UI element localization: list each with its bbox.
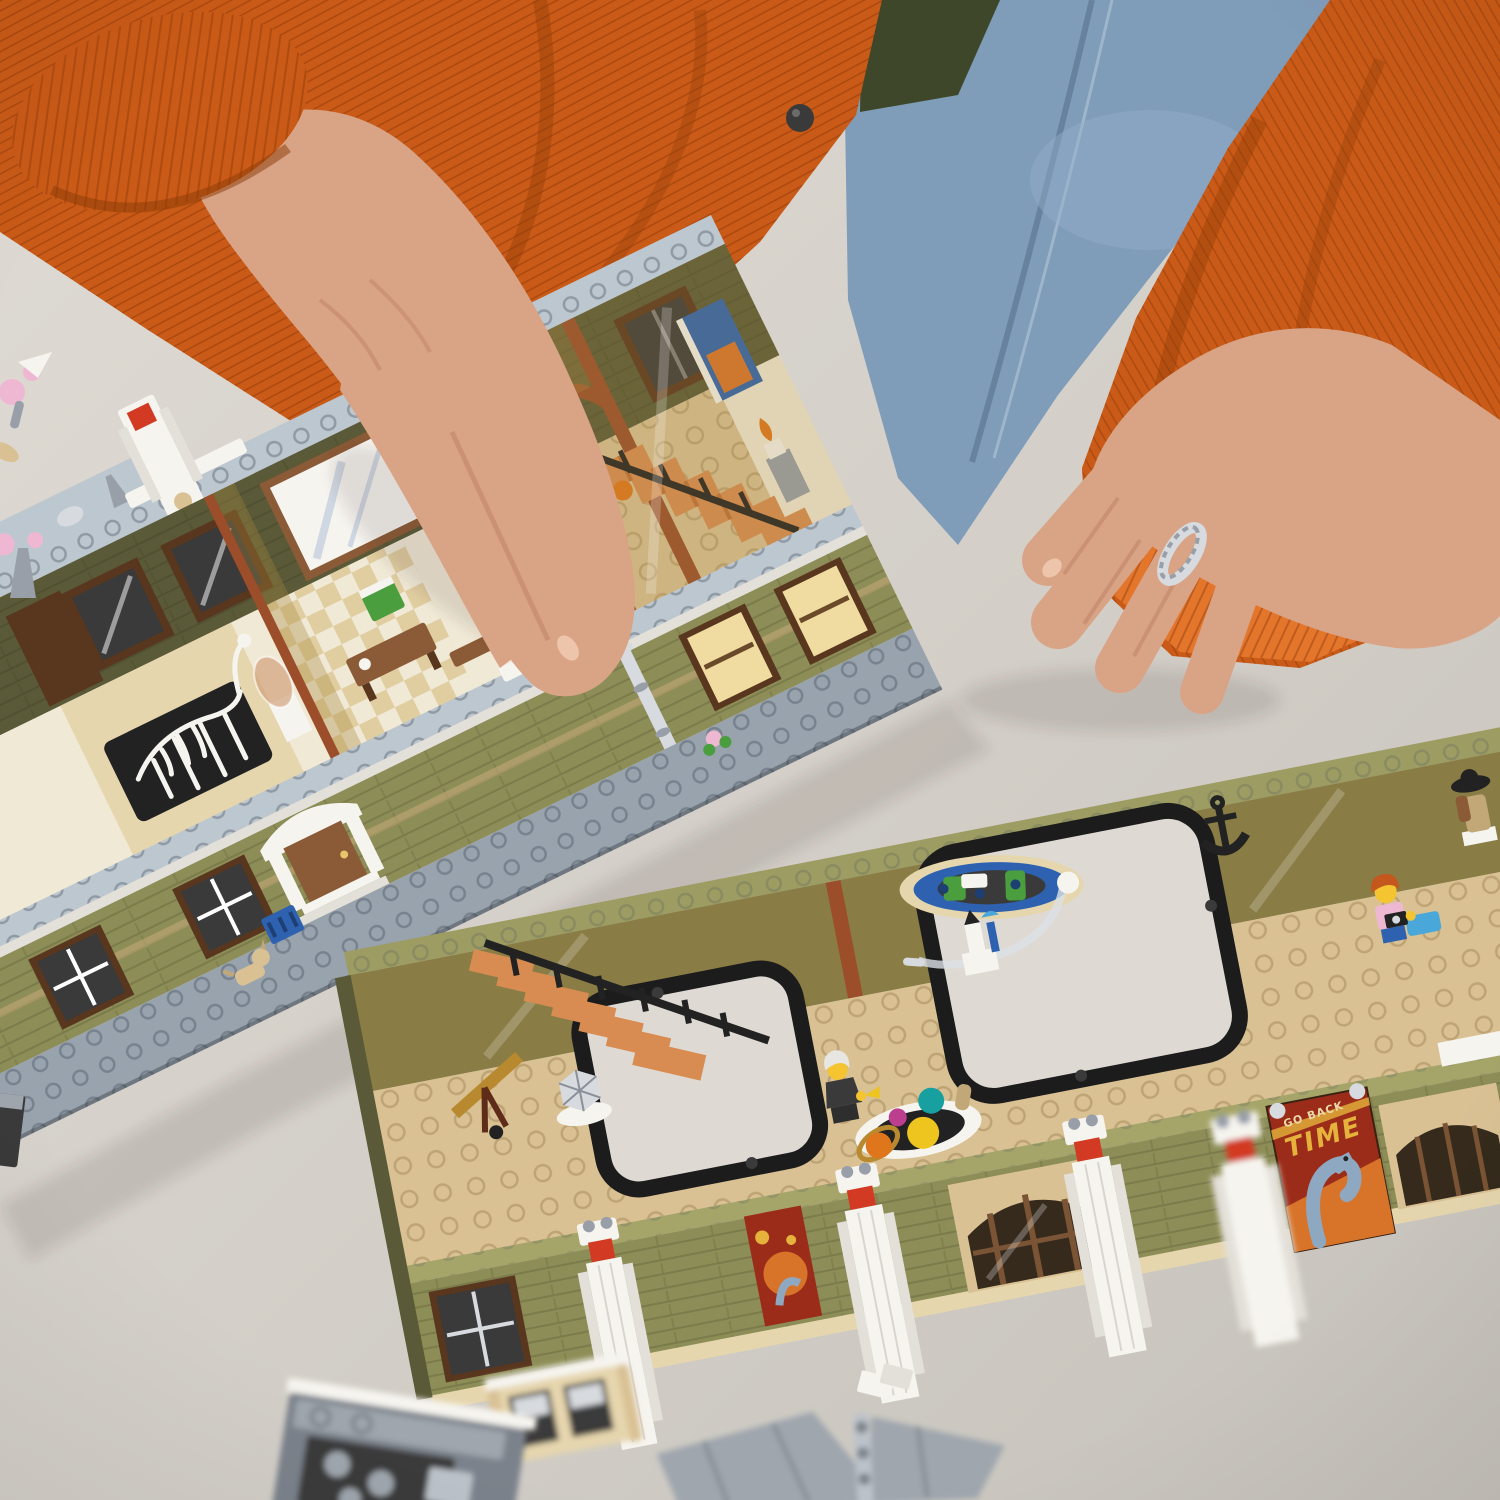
photo-lego-museum-build: GO BACK TIME xyxy=(0,0,1500,1500)
photo-canvas: GO BACK TIME xyxy=(0,0,1500,1500)
vignette-overlay xyxy=(0,0,1500,1500)
